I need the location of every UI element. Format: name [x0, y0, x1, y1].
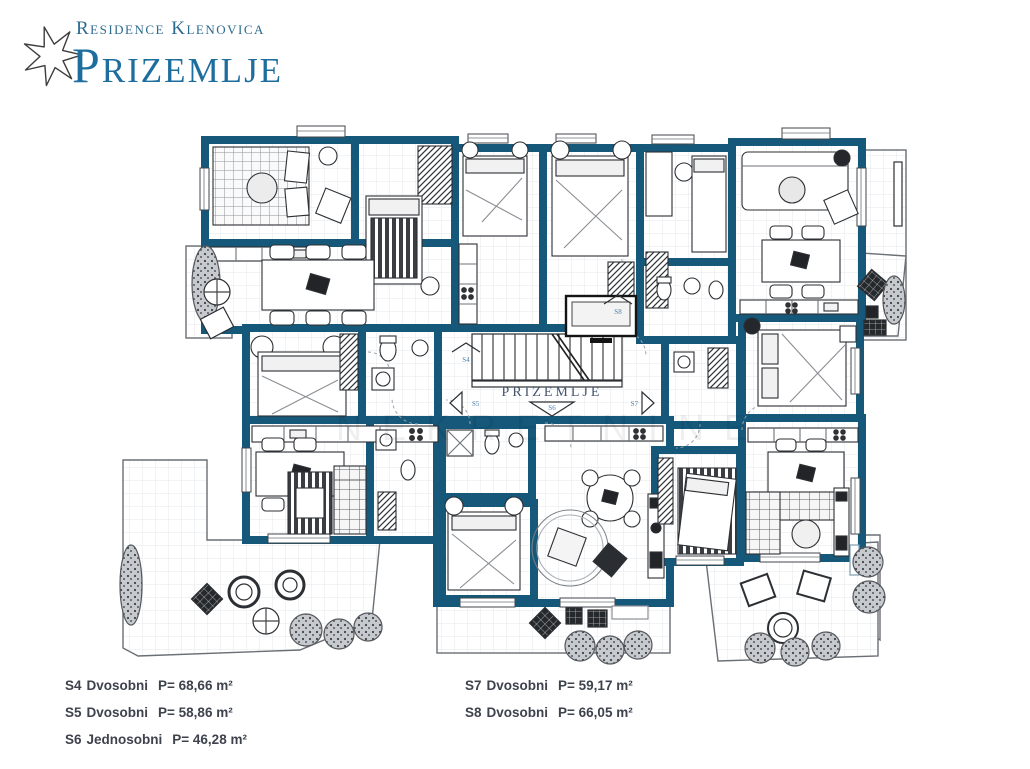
kitchen-column: [459, 244, 477, 324]
bed-kids: [692, 156, 726, 252]
bush: [290, 614, 322, 646]
nightstand: [613, 141, 631, 159]
unit-type: Jednosobni: [87, 732, 163, 747]
unit-type: Dvosobni: [487, 678, 549, 693]
dining-table: [262, 245, 374, 325]
window: [200, 168, 209, 210]
wicker-chair-round: [276, 571, 304, 599]
unit-type: Dvosobni: [87, 705, 149, 720]
nightstand: [551, 141, 569, 159]
unit-type: Dvosobni: [87, 678, 149, 693]
unit-code: S7: [465, 678, 482, 693]
kitchen-counter: [740, 300, 858, 314]
bed-double: [448, 512, 520, 590]
sofa-grid: [334, 466, 366, 534]
legend-item: S8DvosobniP= 66,05 m²: [465, 699, 633, 726]
unit-area: P= 59,17 m²: [558, 678, 633, 693]
sink: [684, 278, 700, 294]
bush: [324, 619, 354, 649]
window: [268, 534, 330, 543]
bench: [894, 162, 902, 226]
wardrobe: [658, 458, 673, 524]
bed-double: [258, 352, 346, 416]
patio-table-dark: [864, 320, 886, 335]
nightstand: [462, 142, 478, 158]
bush: [745, 633, 775, 663]
plan-floor-label: PRIZEMLJE: [502, 385, 603, 400]
unit-area: P= 66,05 m²: [558, 705, 633, 720]
bush: [624, 631, 652, 659]
balcony-strip: [468, 134, 508, 143]
floor-plan-drawing: NEKRETNINE PRIZEMLJE S4 S5 S6 S7 S8: [0, 0, 1030, 764]
kitchen-counter: [210, 247, 314, 261]
balcony-strip: [782, 128, 830, 139]
bush: [812, 632, 840, 660]
wardrobe: [340, 334, 358, 390]
unit-code: S4: [65, 678, 82, 693]
bush: [781, 638, 809, 666]
window: [560, 598, 615, 607]
window: [851, 348, 860, 394]
rug-dark: [288, 472, 332, 534]
nightstand: [505, 497, 523, 515]
window: [851, 478, 860, 534]
window: [242, 448, 251, 492]
legend-item: S6JednosobniP= 46,28 m²: [65, 726, 247, 753]
unit-code: S5: [65, 705, 82, 720]
nightstand: [840, 326, 856, 342]
dining-table-round: [582, 470, 640, 527]
patio-stool: [866, 306, 878, 318]
unit-area: P= 46,28 m²: [172, 732, 247, 747]
bidet: [709, 281, 723, 299]
wicker-chair-round: [229, 577, 259, 607]
shelf: [378, 492, 396, 530]
bed-double: [758, 330, 846, 406]
patio-table: [204, 279, 230, 305]
side-table: [319, 147, 337, 165]
bush: [853, 547, 883, 577]
patio-table-dark: [588, 610, 607, 627]
bush: [596, 636, 624, 664]
toilet: [657, 277, 671, 300]
desk: [646, 152, 672, 216]
chair: [675, 163, 693, 181]
plant: [744, 318, 760, 334]
patio-table: [253, 608, 279, 634]
bush-tall: [120, 545, 142, 625]
sign: [612, 606, 648, 619]
bush-tall: [883, 276, 905, 324]
window: [460, 598, 515, 607]
nightstand: [445, 497, 463, 515]
svg-text:S6: S6: [548, 404, 556, 412]
legend-column-right: S7DvosobniP= 59,17 m² S8DvosobniP= 66,05…: [465, 672, 633, 726]
washer: [372, 368, 394, 390]
bed-single: [678, 473, 736, 551]
floor-plan: NEKRETNINE PRIZEMLJE S4 S5 S6 S7 S8: [0, 0, 1030, 764]
unit-type: Dvosobni: [487, 705, 549, 720]
nightstand: [512, 142, 528, 158]
sink: [412, 340, 428, 356]
balcony-strip: [297, 126, 345, 137]
unit-area: P= 68,66 m²: [158, 678, 233, 693]
washer: [674, 352, 694, 372]
bed-double: [213, 147, 310, 225]
shelf: [708, 348, 728, 388]
legend-item: S7DvosobniP= 59,17 m²: [465, 672, 633, 699]
patio-stool: [566, 608, 582, 624]
plant: [834, 150, 850, 166]
window: [857, 168, 866, 226]
bush: [565, 631, 595, 661]
unit-area: P= 58,86 m²: [158, 705, 233, 720]
window: [676, 556, 724, 565]
tv-unit: [566, 296, 636, 343]
unit-code: S6: [65, 732, 82, 747]
bush: [853, 581, 885, 613]
appliance-column: [834, 488, 849, 556]
unit-code: S8: [465, 705, 482, 720]
bed-single: [463, 156, 527, 236]
legend-item: S5DvosobniP= 58,86 m²: [65, 699, 247, 726]
svg-text:S8: S8: [614, 308, 622, 316]
svg-text:S4: S4: [462, 356, 470, 364]
toilet: [401, 460, 415, 480]
toilet: [380, 336, 396, 361]
legend-item: S4DvosobniP= 68,66 m²: [65, 672, 247, 699]
svg-text:S5: S5: [472, 400, 480, 408]
stool: [421, 277, 439, 295]
wardrobe: [418, 146, 452, 204]
balcony-strip: [652, 135, 694, 144]
bush: [354, 613, 382, 641]
bed-double: [552, 156, 628, 256]
svg-text:S7: S7: [631, 400, 639, 408]
legend-column-left: S4DvosobniP= 68,66 m² S5DvosobniP= 58,86…: [65, 672, 247, 753]
